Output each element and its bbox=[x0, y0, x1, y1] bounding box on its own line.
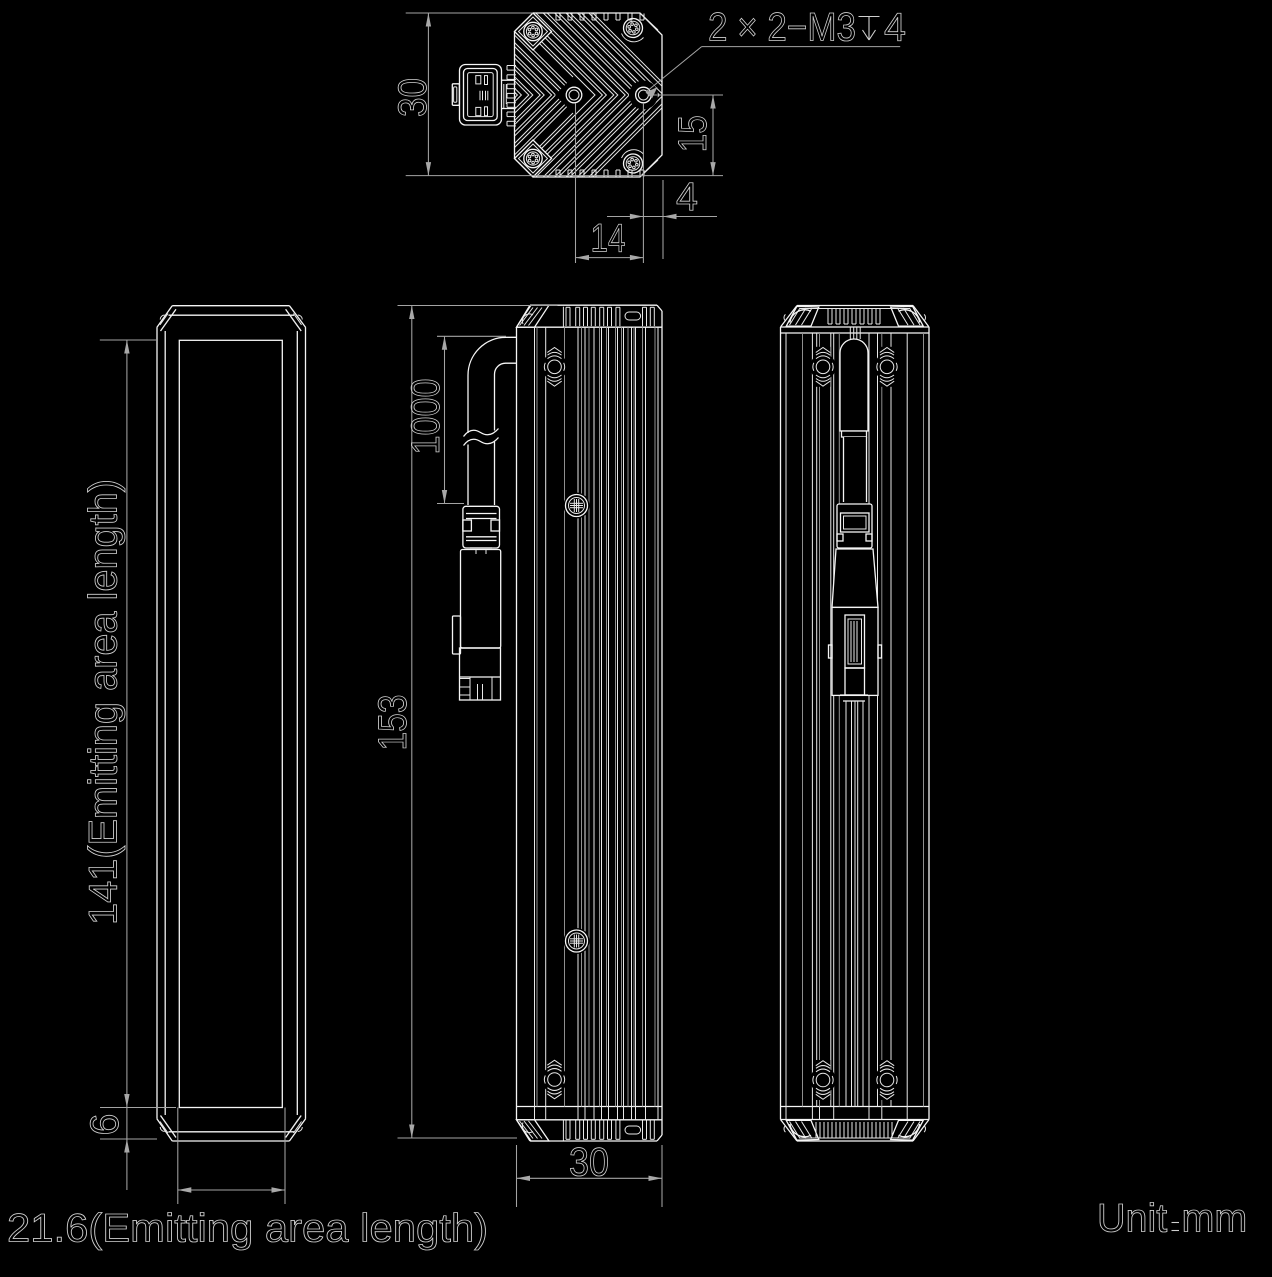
svg-text:14: 14 bbox=[591, 217, 626, 261]
svg-text:21.6(Emitting area length): 21.6(Emitting area length) bbox=[7, 1207, 488, 1251]
svg-text:2 × 2−M3: 2 × 2−M3 bbox=[708, 5, 856, 49]
svg-text:30: 30 bbox=[391, 78, 435, 117]
svg-text:Unit: Unit bbox=[1097, 1196, 1167, 1240]
svg-text:4: 4 bbox=[884, 5, 906, 49]
svg-text:15: 15 bbox=[671, 115, 715, 152]
svg-text:6: 6 bbox=[83, 1114, 127, 1136]
svg-text:4: 4 bbox=[676, 175, 698, 219]
svg-text:mm: mm bbox=[1182, 1196, 1248, 1240]
svg-text:153: 153 bbox=[371, 695, 415, 751]
svg-text:1000: 1000 bbox=[404, 379, 448, 455]
svg-text:30: 30 bbox=[569, 1141, 609, 1185]
svg-text:141(Emitting area length): 141(Emitting area length) bbox=[82, 479, 126, 925]
